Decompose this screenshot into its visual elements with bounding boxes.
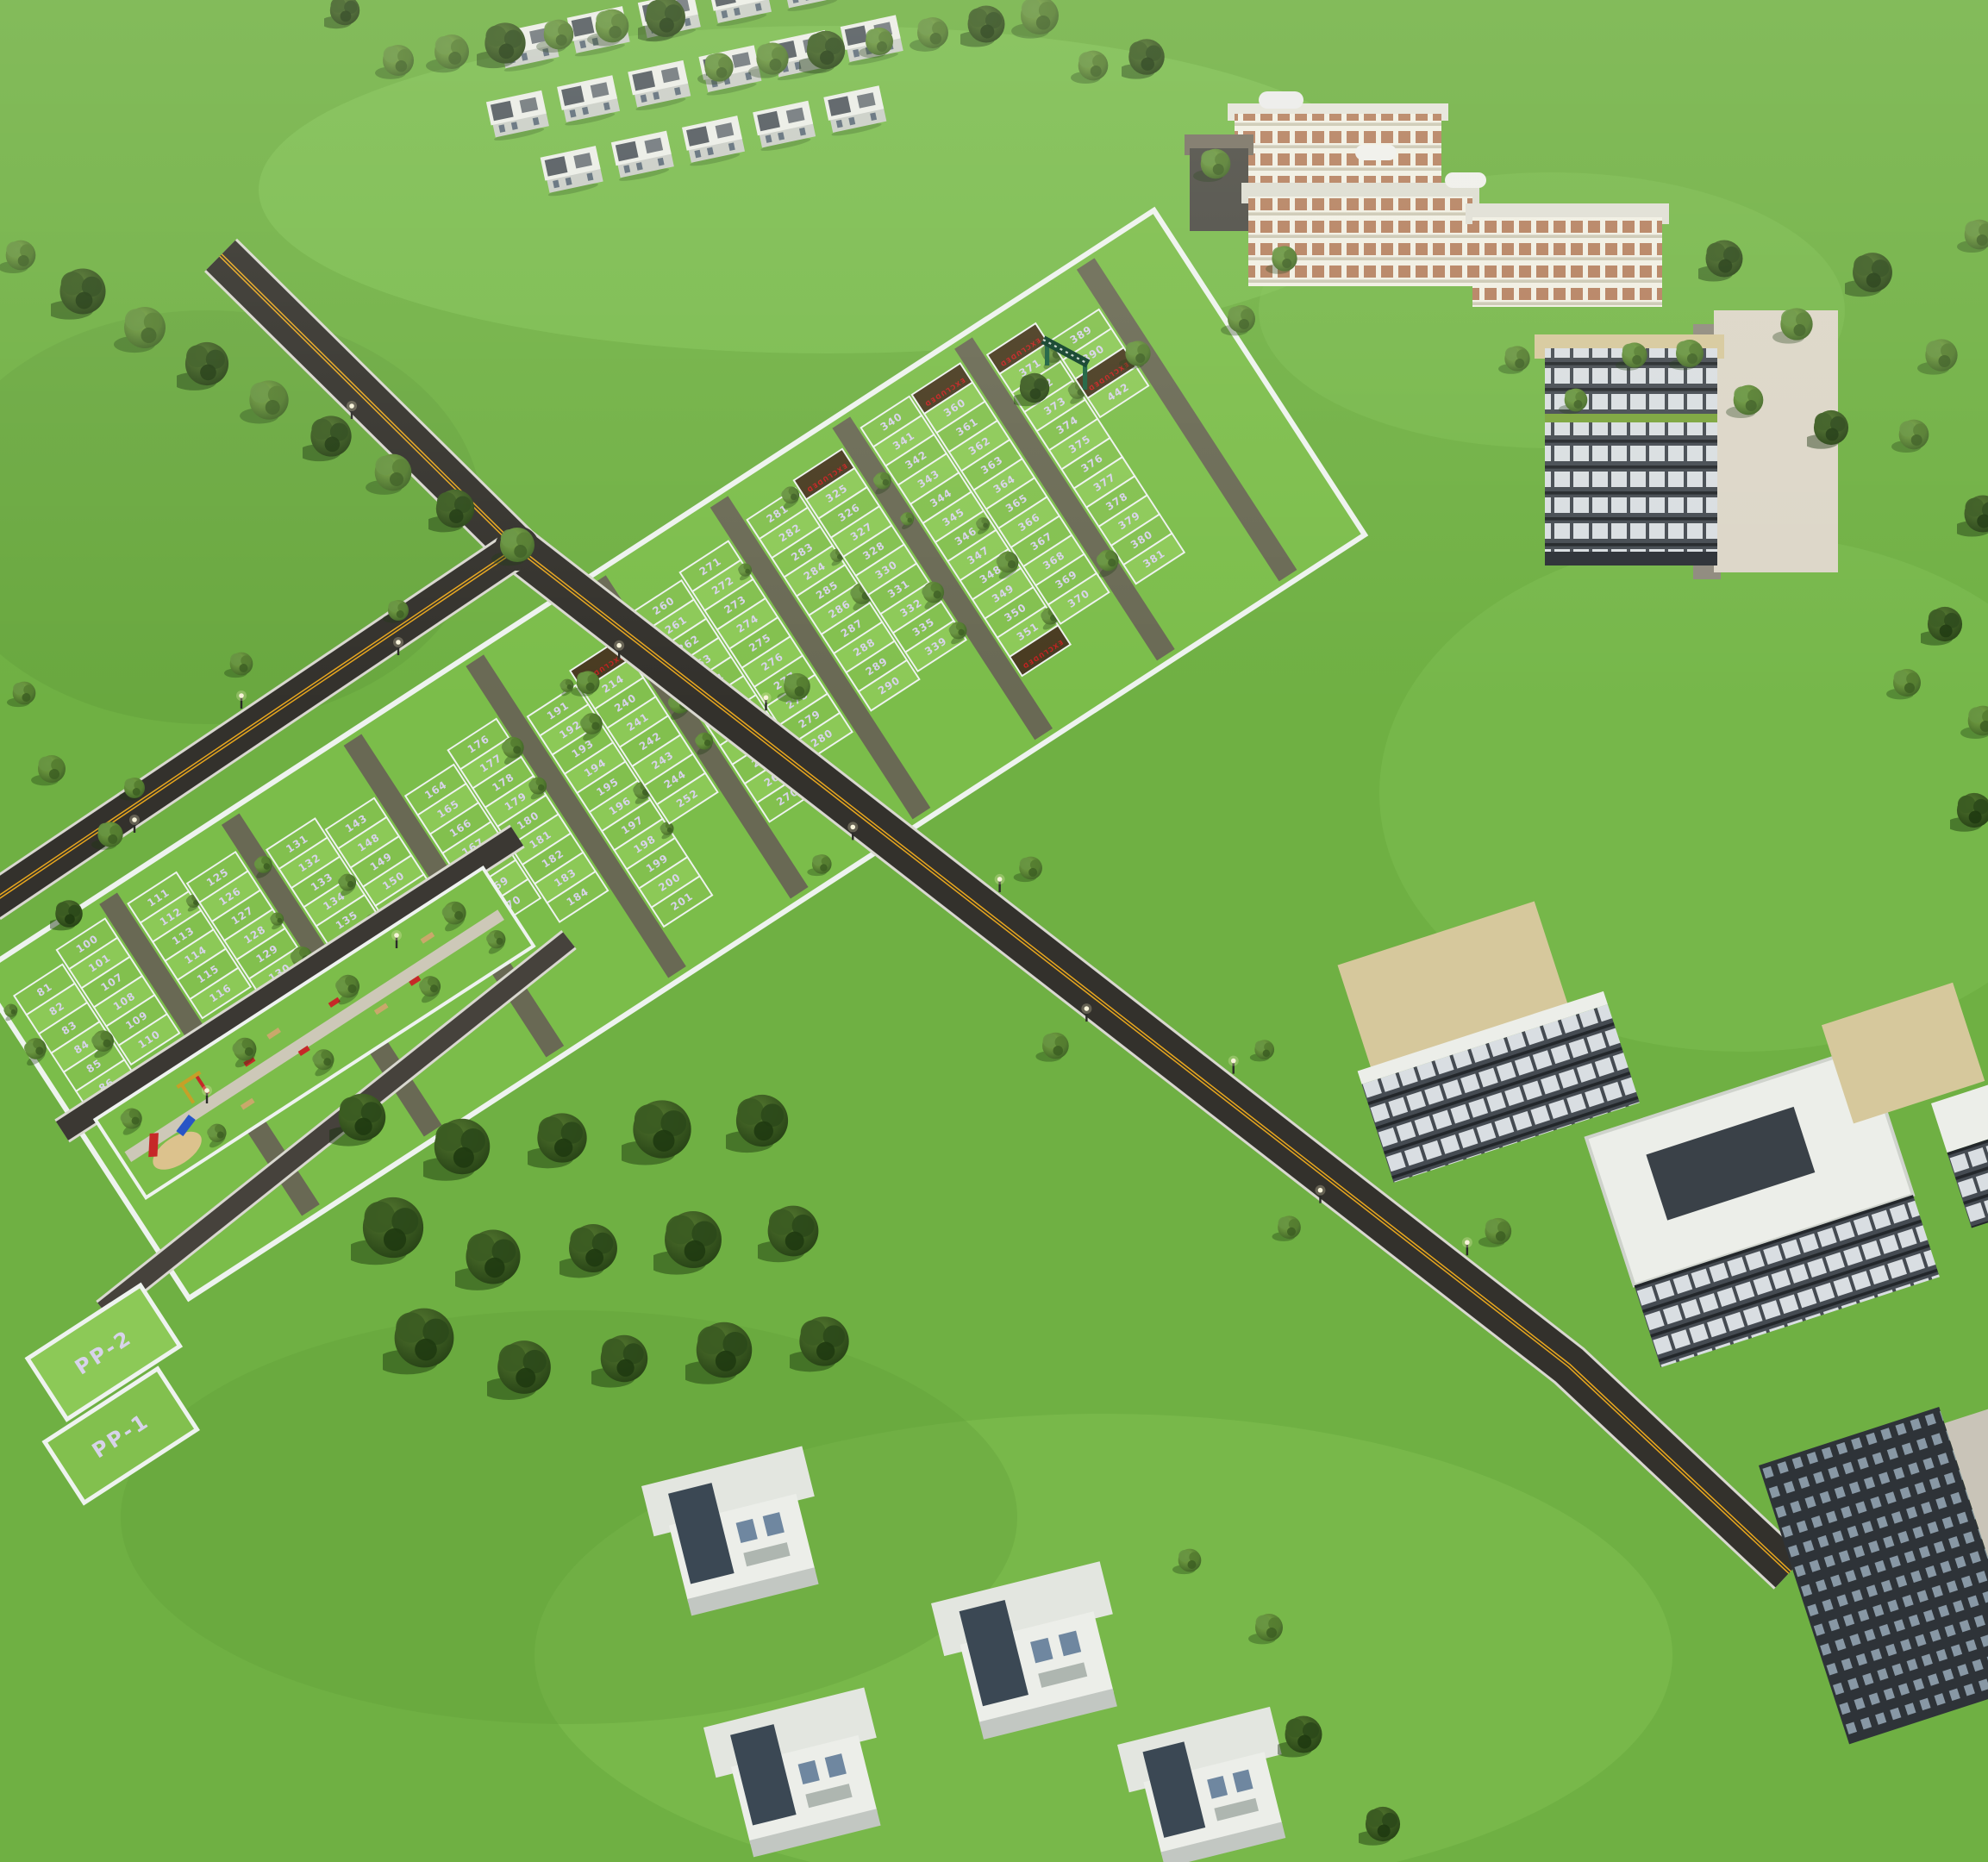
light-head [132,817,137,822]
light-head [239,693,244,698]
light-head [396,640,401,645]
water-tank [1445,172,1486,188]
light-head [1318,1188,1323,1193]
apartment-green-band [1545,414,1717,422]
light-head [1085,1006,1090,1011]
light-head [616,643,622,648]
light-head [850,825,855,830]
aerial-site-render: 8182838485861001011071081091101111121131… [0,0,1988,1862]
light-head [764,695,769,700]
light-head [1465,1240,1470,1245]
light-head [997,877,1003,882]
school-wing [1235,114,1441,183]
light-head [1231,1059,1236,1064]
apartment-facade [1545,348,1717,552]
school-wing [1472,217,1662,307]
grass-patch [121,1310,1017,1724]
apartment-base [1545,552,1717,565]
light-head [349,403,354,409]
water-tank [1259,91,1303,109]
light-head [394,933,399,938]
water-tank [1355,145,1397,160]
light-head [204,1088,209,1093]
